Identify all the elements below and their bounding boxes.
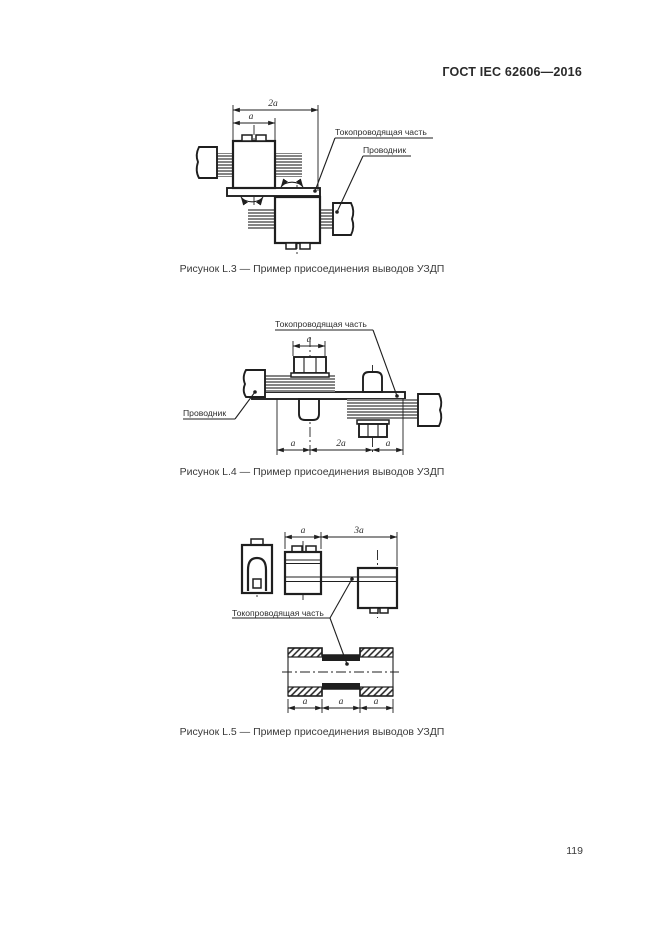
- sleeve-hatch: [288, 687, 322, 696]
- figure-l5-caption: Рисунок L.5 — Пример присоединения вывод…: [0, 726, 624, 738]
- label-conductive-part: Токопроводящая часть: [275, 319, 367, 329]
- conducting-bar: [252, 392, 405, 399]
- dimension-label: 2а: [336, 439, 346, 449]
- figure-l3-drawing: 2а а Токопроводящая часть Проводник: [185, 95, 465, 263]
- terminal-block-upper: [233, 141, 275, 188]
- figure-l3-caption: Рисунок L.3 — Пример присоединения вывод…: [0, 263, 624, 275]
- standard-document-page: ГОСТ IEC 62606—2016: [0, 0, 661, 936]
- dimension-label: а: [307, 335, 312, 345]
- label-conductor: Проводник: [363, 145, 406, 155]
- figure-l4-caption: Рисунок L.4 — Пример присоединения вывод…: [0, 466, 624, 478]
- dimension-label: а: [386, 439, 391, 449]
- conductor-end-right: [418, 394, 441, 426]
- washer: [291, 373, 329, 377]
- dimension-label: а: [249, 112, 254, 122]
- terminal-tab: [370, 608, 378, 613]
- terminal-tab: [380, 608, 388, 613]
- label-conductive-part: Токопроводящая часть: [232, 608, 324, 618]
- conducting-bar: [227, 188, 320, 196]
- dimension-label: а: [339, 697, 344, 707]
- wire-strands: [275, 153, 302, 177]
- sleeve-wall: [322, 655, 360, 661]
- terminal-tab: [256, 135, 266, 141]
- label-conductor: Проводник: [183, 408, 226, 418]
- terminal-tab: [286, 243, 296, 249]
- wire-strands: [320, 208, 333, 230]
- clamp-arc: [281, 182, 303, 187]
- wire-strands: [217, 153, 233, 177]
- terminal-slot: [253, 579, 261, 588]
- figure-l4-drawing: а а 2а а Токопроводящая часть Проводник: [180, 315, 465, 463]
- bolt-head: [359, 424, 387, 437]
- conductor-end-right: [333, 203, 353, 235]
- clamp-arc: [241, 197, 263, 202]
- bolt-shank: [363, 372, 382, 392]
- dimension-label: а: [291, 439, 296, 449]
- sleeve-hatch: [288, 648, 322, 657]
- bolt-head: [294, 357, 326, 373]
- dimension-label: 2а: [268, 99, 278, 109]
- terminal-tab: [300, 243, 310, 249]
- dimension-label: а: [374, 697, 379, 707]
- terminal-block-lower: [275, 197, 320, 243]
- dimension-label: а: [303, 697, 308, 707]
- figure-l5-drawing: а 3а Токопроводящая часть: [225, 525, 465, 725]
- label-conductive-part: Токопроводящая часть: [335, 127, 427, 137]
- wire-strands: [347, 399, 418, 420]
- document-header: ГОСТ IEC 62606—2016: [442, 65, 582, 79]
- sleeve-wall: [322, 683, 360, 689]
- bolt-shank: [299, 399, 319, 420]
- sleeve-hatch: [360, 648, 393, 657]
- conductor-end-left: [197, 147, 217, 178]
- dimension-label: 3а: [353, 526, 364, 536]
- page-number: 119: [566, 845, 583, 857]
- wire-strands: [248, 208, 275, 230]
- terminal-tab: [242, 135, 252, 141]
- sleeve-hatch: [360, 687, 393, 696]
- dimension-label: а: [301, 526, 306, 536]
- terminal-block: [358, 568, 397, 608]
- terminal-block: [285, 552, 321, 594]
